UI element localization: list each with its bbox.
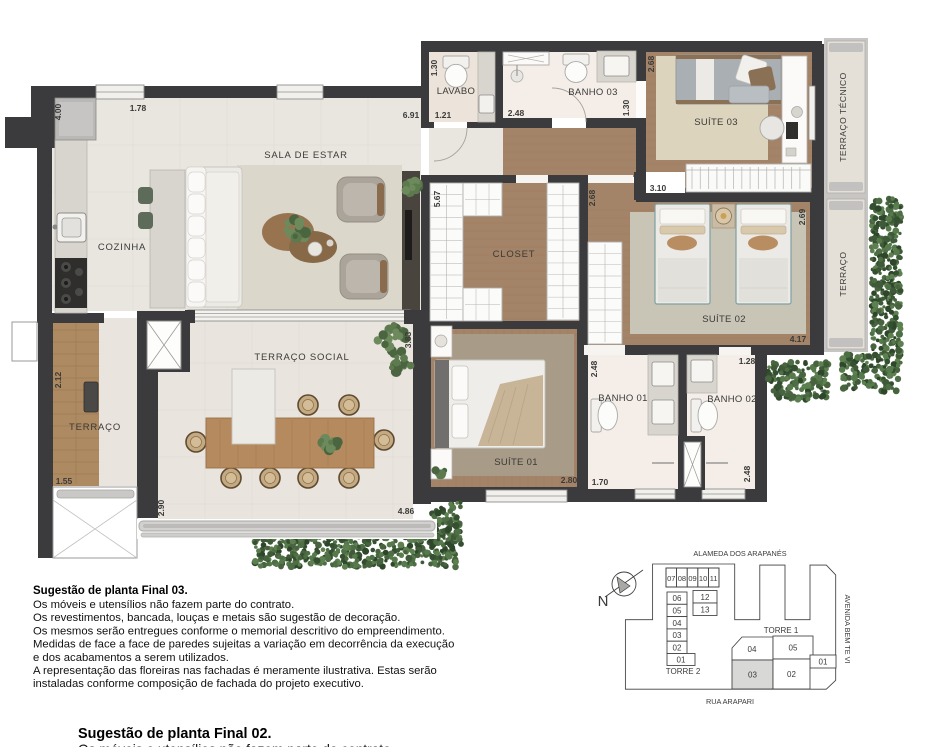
svg-text:2.12: 2.12 bbox=[53, 371, 63, 388]
svg-text:01: 01 bbox=[677, 656, 686, 665]
svg-text:04: 04 bbox=[673, 619, 682, 628]
svg-text:02: 02 bbox=[673, 643, 682, 652]
svg-text:2.48: 2.48 bbox=[589, 360, 599, 377]
svg-text:01: 01 bbox=[819, 658, 828, 667]
svg-text:03: 03 bbox=[673, 631, 682, 640]
svg-text:SALA DE ESTAR: SALA DE ESTAR bbox=[264, 150, 348, 161]
svg-text:Os móveis e utensílios não faz: Os móveis e utensílios não fazem parte d… bbox=[33, 599, 294, 611]
svg-text:TERRAÇO TÉCNICO: TERRAÇO TÉCNICO bbox=[838, 72, 848, 162]
svg-text:05: 05 bbox=[673, 606, 682, 615]
svg-text:13: 13 bbox=[701, 605, 710, 614]
svg-text:1.55: 1.55 bbox=[56, 476, 73, 486]
svg-text:3.10: 3.10 bbox=[650, 183, 667, 193]
svg-text:BANHO 01: BANHO 01 bbox=[598, 393, 647, 404]
svg-text:COZINHA: COZINHA bbox=[98, 242, 146, 253]
svg-text:04: 04 bbox=[748, 645, 757, 654]
svg-text:A representação das floreiras: A representação das floreiras nas fachad… bbox=[33, 665, 437, 677]
svg-text:2.48: 2.48 bbox=[742, 465, 752, 482]
svg-text:TERRAÇO: TERRAÇO bbox=[69, 422, 121, 433]
svg-text:12: 12 bbox=[701, 593, 710, 602]
svg-text:11: 11 bbox=[710, 574, 718, 583]
svg-text:Os móveis e utensílios não faz: Os móveis e utensílios não fazem parte d… bbox=[78, 742, 395, 747]
svg-text:TERRAÇO: TERRAÇO bbox=[838, 251, 848, 296]
svg-text:SUÍTE 02: SUÍTE 02 bbox=[702, 314, 746, 325]
svg-text:2.68: 2.68 bbox=[646, 55, 656, 72]
svg-text:03: 03 bbox=[748, 671, 757, 680]
svg-text:N: N bbox=[598, 593, 609, 610]
svg-text:08: 08 bbox=[678, 574, 686, 583]
svg-text:1.30: 1.30 bbox=[621, 99, 631, 116]
svg-text:AVENIDA BEM TE VI: AVENIDA BEM TE VI bbox=[843, 594, 852, 663]
svg-text:02: 02 bbox=[787, 670, 796, 679]
svg-text:2.80: 2.80 bbox=[561, 475, 578, 485]
svg-text:07: 07 bbox=[667, 574, 675, 583]
svg-text:2.48: 2.48 bbox=[508, 108, 525, 118]
svg-text:SUÍTE 01: SUÍTE 01 bbox=[494, 457, 538, 468]
svg-text:Sugestão de planta Final 03.: Sugestão de planta Final 03. bbox=[33, 585, 188, 597]
svg-text:4.86: 4.86 bbox=[398, 506, 415, 516]
svg-text:ALAMEDA DOS ARAPANÉS: ALAMEDA DOS ARAPANÉS bbox=[693, 549, 786, 558]
svg-text:SUÍTE 03: SUÍTE 03 bbox=[694, 117, 738, 128]
svg-text:Medidas de face a face de pare: Medidas de face a face de paredes sujeit… bbox=[33, 639, 454, 651]
svg-text:CLOSET: CLOSET bbox=[493, 249, 536, 260]
svg-text:06: 06 bbox=[673, 594, 682, 603]
svg-text:RUA ARAPARI: RUA ARAPARI bbox=[706, 697, 754, 706]
svg-text:4.17: 4.17 bbox=[790, 334, 807, 344]
svg-text:BANHO 03: BANHO 03 bbox=[568, 87, 617, 98]
svg-text:1.70: 1.70 bbox=[592, 477, 609, 487]
svg-text:3.83: 3.83 bbox=[403, 331, 413, 348]
svg-text:10: 10 bbox=[699, 574, 707, 583]
svg-text:1.30: 1.30 bbox=[429, 59, 439, 76]
svg-text:4.00: 4.00 bbox=[53, 103, 63, 120]
svg-text:1.28: 1.28 bbox=[739, 356, 756, 366]
svg-text:2.69: 2.69 bbox=[797, 208, 807, 225]
svg-text:TERRAÇO SOCIAL: TERRAÇO SOCIAL bbox=[254, 352, 349, 363]
svg-text:instaladas conforme composição: instaladas conforme composição de fachad… bbox=[33, 678, 364, 690]
svg-text:6.91: 6.91 bbox=[403, 110, 420, 120]
svg-text:Os mesmos serão entregues conf: Os mesmos serão entregues conforme o mem… bbox=[33, 625, 445, 637]
svg-text:05: 05 bbox=[789, 644, 798, 653]
svg-text:2.68: 2.68 bbox=[587, 189, 597, 206]
svg-text:TORRE 2: TORRE 2 bbox=[666, 667, 701, 676]
svg-text:1.21: 1.21 bbox=[435, 110, 452, 120]
svg-text:5.67: 5.67 bbox=[432, 190, 442, 207]
svg-text:1.78: 1.78 bbox=[130, 103, 147, 113]
svg-text:e dos acabamentos a serem util: e dos acabamentos a serem utilizados. bbox=[33, 652, 229, 664]
svg-text:Sugestão de planta Final 02.: Sugestão de planta Final 02. bbox=[78, 726, 272, 742]
svg-text:TORRE 1: TORRE 1 bbox=[764, 626, 799, 635]
svg-text:2.90: 2.90 bbox=[156, 499, 166, 516]
svg-text:09: 09 bbox=[688, 574, 696, 583]
svg-text:Os revestimentos, bancada, lou: Os revestimentos, bancada, louças e meta… bbox=[33, 612, 400, 624]
svg-text:LAVABO: LAVABO bbox=[437, 86, 475, 97]
svg-text:BANHO 02: BANHO 02 bbox=[707, 394, 756, 405]
